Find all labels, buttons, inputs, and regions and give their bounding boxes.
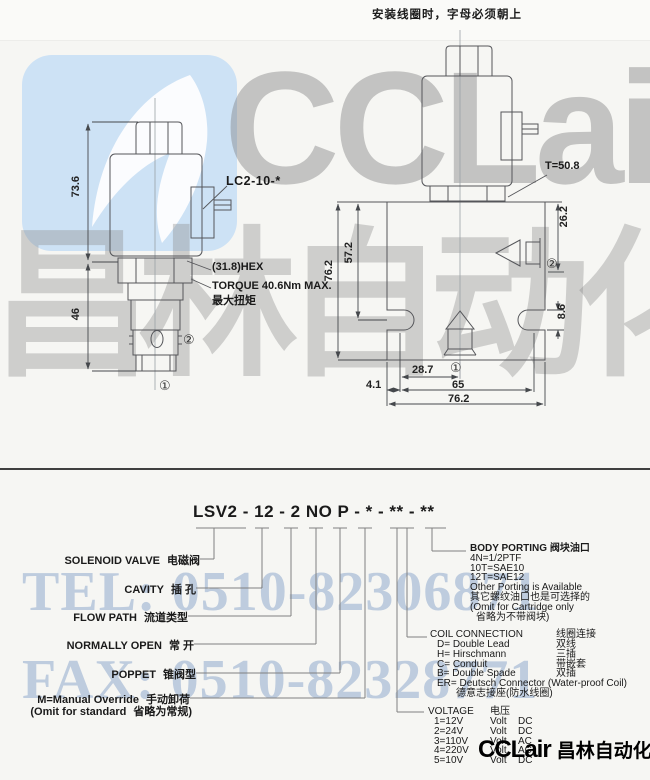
- field-en: NORMALLY OPEN: [67, 640, 162, 652]
- order-code-connectors: [0, 470, 650, 780]
- torque-t-label: T=50.8: [545, 160, 580, 172]
- field-en: SOLENOID VALVE: [64, 555, 160, 567]
- field-cn: 锥阀型: [163, 669, 196, 681]
- body-porting-title-cn: 阀块油口: [550, 543, 590, 554]
- body-porting-line: 省略为不带阀块): [470, 613, 590, 623]
- dim-28-7: 28.7: [412, 364, 433, 376]
- footer-logo: CCLair 昌林自动化: [478, 736, 650, 764]
- right-view-outline: [337, 46, 562, 360]
- field-solenoid-valve: SOLENOID VALVE电磁阀: [20, 552, 200, 568]
- body-porting-block: BODY PORTING 阀块油口 4N=1/2PTF 10T=SAE10 12…: [470, 544, 590, 622]
- dim-4-1: 4.1: [366, 379, 381, 391]
- dim-65: 65: [452, 379, 464, 391]
- field-cn: 流道类型: [144, 612, 188, 624]
- torque-label-en: TORQUE 40.6Nm MAX.: [212, 280, 332, 292]
- dim-26-2: 26.2: [558, 206, 570, 227]
- dim-73-6: 73.6: [70, 176, 82, 197]
- field-cn: 省略为常规): [133, 706, 192, 718]
- left-view-outline: [110, 122, 231, 371]
- field-cavity: CAVITY插 孔: [16, 581, 196, 597]
- torque-label-cn: 最大扭矩: [212, 292, 256, 308]
- valve-drawings: [0, 0, 650, 470]
- dim-57-2: 57.2: [343, 242, 355, 263]
- field-en: FLOW PATH: [73, 612, 137, 624]
- install-note: 安装线圈时，字母必须朝上: [372, 6, 522, 22]
- dim-76-2-bottom: 76.2: [448, 393, 469, 405]
- port1-mark-right: ①: [450, 361, 462, 376]
- field-normally-open: NORMALLY OPEN常 开: [14, 637, 194, 653]
- field-cn: 常 开: [169, 640, 194, 652]
- datasheet-page: CCLair 昌林自动化 TEL: 0510-82306871 FAX: 051…: [0, 0, 650, 780]
- field-omit-standard: (Omit for standard省略为常规): [10, 703, 192, 719]
- port1-mark-left: ①: [159, 379, 171, 394]
- footer-brand-text: CCLair: [478, 736, 551, 764]
- field-flow-path: FLOW PATH流道类型: [8, 609, 188, 625]
- port2-mark-right: ②: [546, 257, 558, 272]
- field-poppet: POPPET锥阀型: [16, 666, 196, 682]
- field-en: POPPET: [111, 669, 156, 681]
- field-en: CAVITY: [124, 584, 164, 596]
- centerlines: [155, 30, 460, 390]
- hex-label: (31.8)HEX: [212, 261, 263, 273]
- field-en: (Omit for standard: [30, 706, 126, 718]
- coil-model-label: LC2-10-*: [226, 174, 281, 188]
- port2-mark-left: ②: [183, 333, 195, 348]
- field-cn: 电磁阀: [167, 555, 200, 567]
- coil-row-er-cn: 德意志接座(防水线圈): [437, 689, 627, 699]
- coil-connection-rows: D= Double Lead 双线 H= Hirschmann 三插 C= Co…: [437, 640, 627, 699]
- dim-76-2-left: 76.2: [323, 260, 335, 281]
- footer-brand-cn-text: 昌林自动化: [557, 736, 650, 763]
- dim-46: 46: [70, 308, 82, 320]
- field-cn: 插 孔: [171, 584, 196, 596]
- dim-8-6: 8.6: [556, 304, 568, 319]
